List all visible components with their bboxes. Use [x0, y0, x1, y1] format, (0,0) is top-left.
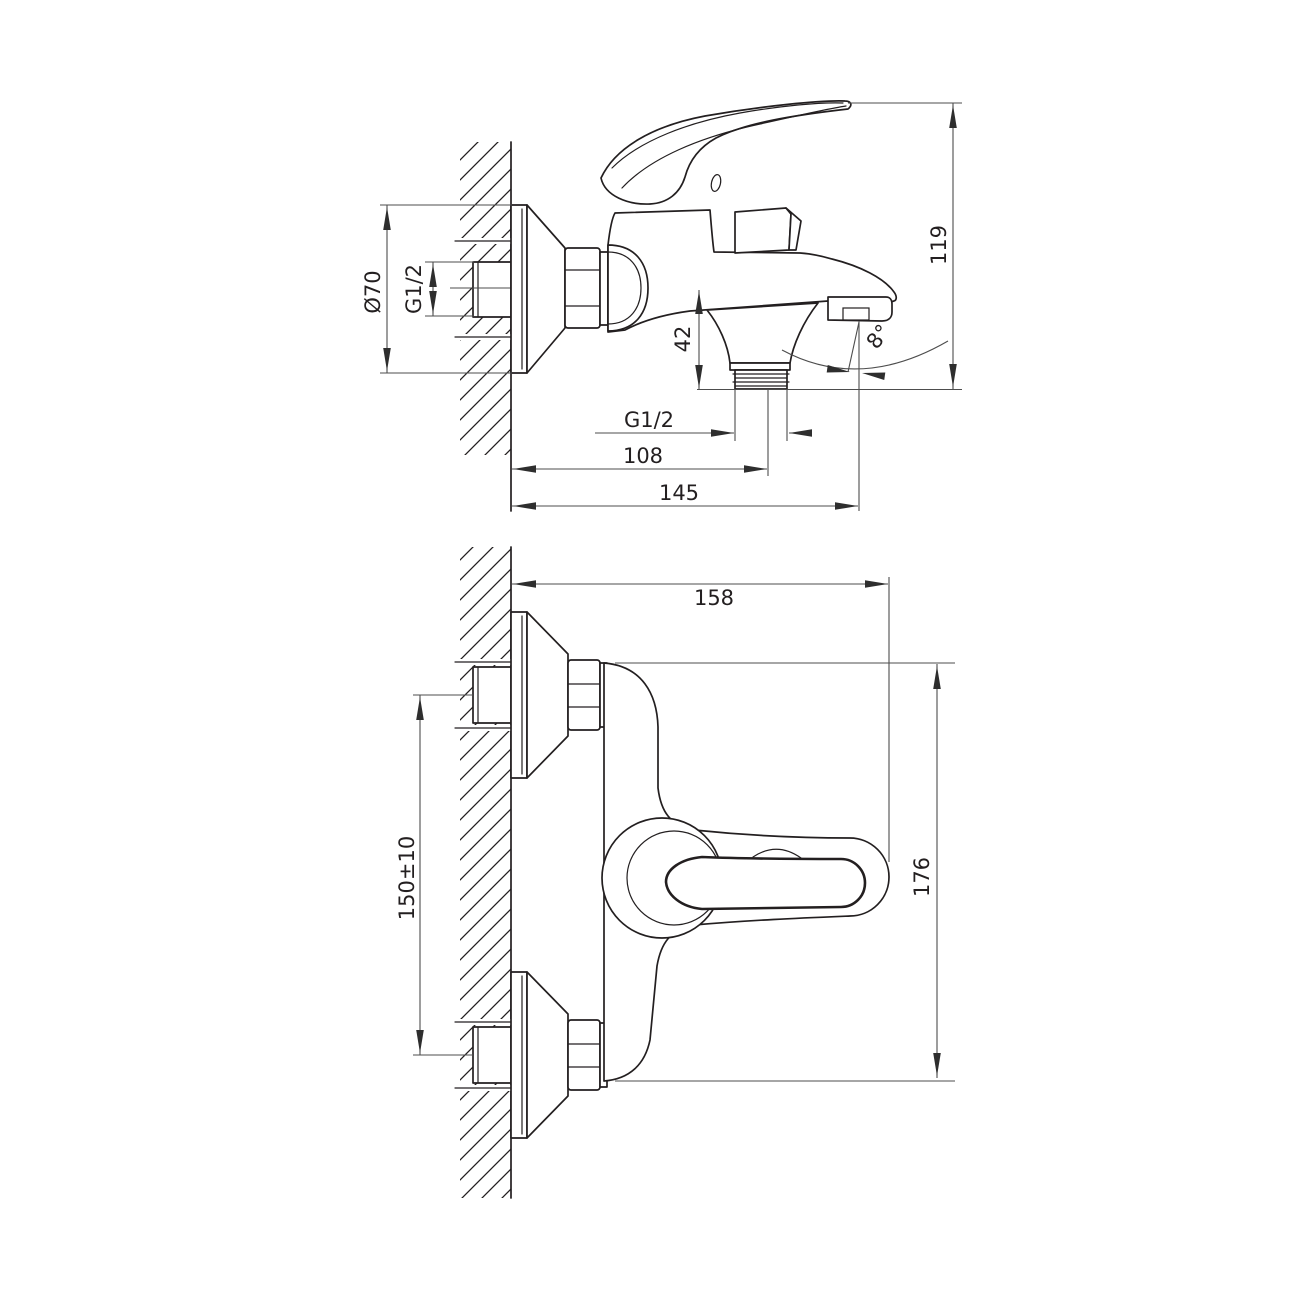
- arrowhead: [865, 580, 888, 588]
- inlet-connector: [473, 262, 511, 317]
- arrowhead: [513, 465, 536, 473]
- dim-label-108: 108: [623, 444, 663, 468]
- arrowhead: [416, 697, 424, 720]
- mounting-nut: [568, 660, 600, 730]
- escutcheon-side: [511, 205, 608, 373]
- mounting-nut: [565, 248, 600, 328]
- arrowhead: [513, 502, 536, 510]
- outlet-funnel: [707, 303, 818, 363]
- arrowhead: [695, 365, 703, 388]
- plan-view: 158 176 150±10: [395, 547, 955, 1198]
- arrowhead: [744, 465, 767, 473]
- arrowhead: [949, 364, 957, 387]
- lever-handle-side: [601, 101, 851, 204]
- handle-lever-plan: [666, 857, 865, 909]
- escutcheon-cone: [527, 972, 568, 1138]
- dim-label-dia70: Ø70: [361, 270, 385, 313]
- dim-label-42: 42: [671, 326, 695, 353]
- faucet-body-plan: [602, 663, 889, 1081]
- escutcheon-plate: [511, 205, 527, 373]
- arrowhead: [513, 580, 536, 588]
- wall-section: [460, 142, 511, 511]
- faucet-body-side: [608, 208, 896, 389]
- aerator: [828, 297, 892, 321]
- arrowhead: [711, 429, 734, 437]
- escutcheon-plate: [511, 612, 527, 778]
- diverter-knob: [735, 208, 791, 253]
- arrowhead: [861, 369, 885, 380]
- dim-label-145: 145: [659, 481, 699, 505]
- outlet-thread: [733, 370, 789, 389]
- handle-screw-cover: [710, 174, 722, 192]
- wall-section-plan: [460, 547, 511, 1198]
- outlet-flange: [730, 363, 790, 370]
- escutcheon-cone: [527, 205, 565, 373]
- arrowhead: [429, 291, 437, 314]
- arrowhead: [429, 264, 437, 287]
- dim-label-150: 150±10: [395, 836, 419, 920]
- dim-label-119: 119: [927, 225, 951, 265]
- technical-drawing: Ø70 G1/2 42 119: [0, 0, 1300, 1300]
- arrowhead: [383, 207, 391, 230]
- arrowhead: [416, 1030, 424, 1053]
- escutcheon-plate: [511, 972, 527, 1138]
- arrowhead: [827, 365, 851, 376]
- mounting-nut: [568, 1020, 600, 1090]
- nut-washer: [600, 252, 608, 325]
- escutcheon-cone: [527, 612, 568, 778]
- inlet-connector: [473, 1027, 511, 1083]
- dim-label-176: 176: [910, 857, 934, 897]
- arrowhead: [835, 502, 858, 510]
- dim-label-g12-side: G1/2: [402, 264, 426, 314]
- arrowhead: [949, 105, 957, 128]
- wall-hatch: [460, 547, 511, 1198]
- inlet-connector: [473, 667, 511, 723]
- arrowhead: [933, 666, 941, 689]
- side-view: Ø70 G1/2 42 119: [361, 101, 962, 511]
- dim-label-158: 158: [694, 586, 734, 610]
- dim-label-g12-bottom: G1/2: [624, 408, 674, 432]
- arrowhead: [789, 429, 812, 437]
- angle-dimension: 8°: [782, 320, 948, 380]
- arrowhead: [933, 1053, 941, 1076]
- arrowhead: [383, 348, 391, 371]
- dim-label-8deg: 8°: [862, 320, 896, 354]
- drawing-canvas: Ø70 G1/2 42 119: [0, 0, 1300, 1300]
